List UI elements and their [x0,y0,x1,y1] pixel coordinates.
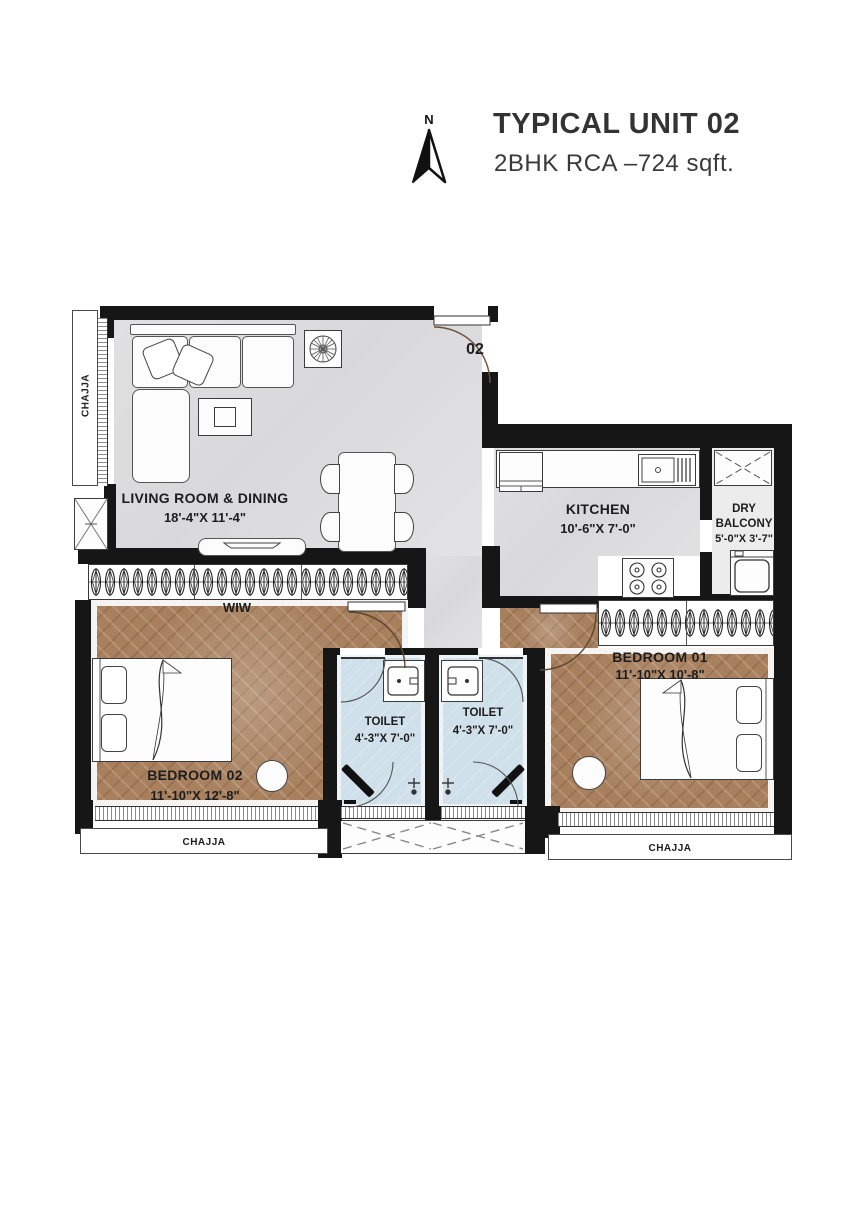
bedroom-01-dim: 11'-10"X 10'-8" [575,667,745,684]
wall [425,648,439,810]
wiw-wardrobe [88,564,408,600]
chajja-bottom-left-strip: CHAJJA [80,828,328,854]
dry-balcony-label: DRY BALCONY [712,502,776,532]
plan-title: TYPICAL UNIT 02 [493,108,740,141]
dining-chair [394,512,414,542]
duct-bottom [341,820,525,854]
bedroom-01-label: BEDROOM 01 [575,648,745,666]
balcony-platform [714,450,772,486]
ceiling-fan [304,330,342,368]
coffee-table [198,398,252,436]
dining-chair [394,464,414,494]
drain-icon [442,778,456,798]
kitchen-dim: 10'-6"X 7'-0" [520,521,676,538]
north-letter: N [424,112,433,127]
drain-icon [408,778,422,798]
chajja-left-label: CHAJJA [80,370,93,422]
sofa-chaise [132,389,190,483]
wardrobe-divider [686,601,687,645]
toilet-right-door [471,646,529,710]
wardrobe-divider [301,565,302,599]
dining-chair [320,512,340,542]
wall [75,600,91,814]
living-room-label: LIVING ROOM & DINING [105,489,305,507]
chajja-bottom-right-strip: CHAJJA [548,834,792,860]
wall [525,806,545,854]
bedroom-02-label: BEDROOM 02 [110,766,280,784]
dining-table [338,452,396,552]
toilet-right-label: TOILET [443,706,523,721]
plan-subtitle: 2BHK RCA –724 sqft. [494,150,734,178]
kitchen-sink [638,454,696,486]
wall [100,306,434,320]
unit-number: 02 [458,340,492,361]
dry-balcony-dim: 5'-0"X 3'-7" [708,532,780,546]
toilet-left-door [337,646,395,710]
wiw-label: WIW [205,600,269,617]
bedroom-02-window [95,806,318,821]
tv-console [198,538,306,556]
floor-plan-page: N TYPICAL UNIT 02 2BHK RCA –724 sqft. N … [0,0,860,1220]
living-room-dim: 18'-4"X 11'-4" [105,510,305,527]
wall [323,648,337,810]
bedroom-01-window [558,812,774,827]
washing-machine [730,550,774,596]
dining-chair [320,464,340,494]
sofa-console [130,324,296,335]
shower-left-door [344,758,400,814]
refrigerator [499,452,543,492]
passage-floor [424,556,482,656]
wall [700,448,712,520]
wall [482,424,792,448]
bedroom-02-dim: 11'-10"X 12'-8" [110,788,280,805]
pillow [101,666,127,704]
duct-left [74,498,108,550]
bedroom-01-wardrobe [598,600,774,646]
pillow [101,714,127,752]
toilet-left-label: TOILET [345,715,425,730]
wall [774,448,792,840]
pillow [736,686,762,724]
pillow [736,734,762,772]
chajja-left-strip: CHAJJA [72,310,98,486]
toilet-right-dim: 4'-3"X 7'-0" [443,724,523,739]
chajja-bottom-right-label: CHAJJA [549,842,791,855]
wardrobe-divider [194,565,195,599]
chajja-bottom-left-label: CHAJJA [81,836,327,849]
shower-right-door [464,758,524,814]
bedroom-01-side-table [572,756,606,790]
kitchen-label: KITCHEN [520,500,676,518]
north-arrow-icon: N [407,110,451,188]
gas-hob [622,558,674,598]
toilet-left-dim: 4'-3"X 7'-0" [345,732,425,747]
